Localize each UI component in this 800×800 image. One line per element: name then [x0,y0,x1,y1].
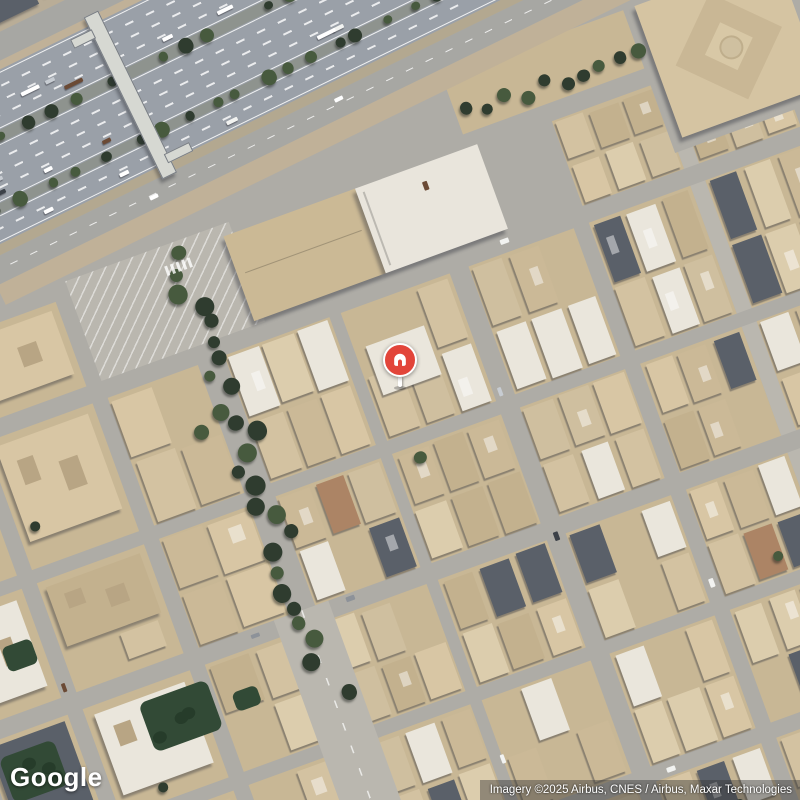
marker-circle [383,343,417,377]
satellite-map[interactable]: Google Imagery ©2025 Airbus, CNES / Airb… [0,0,800,800]
map-attribution: Imagery ©2025 Airbus, CNES / Airbus, Max… [480,780,800,800]
home-place-marker[interactable] [383,343,417,391]
home-icon [390,350,410,370]
google-logo[interactable]: Google [10,762,103,793]
marker-pole [398,376,402,387]
